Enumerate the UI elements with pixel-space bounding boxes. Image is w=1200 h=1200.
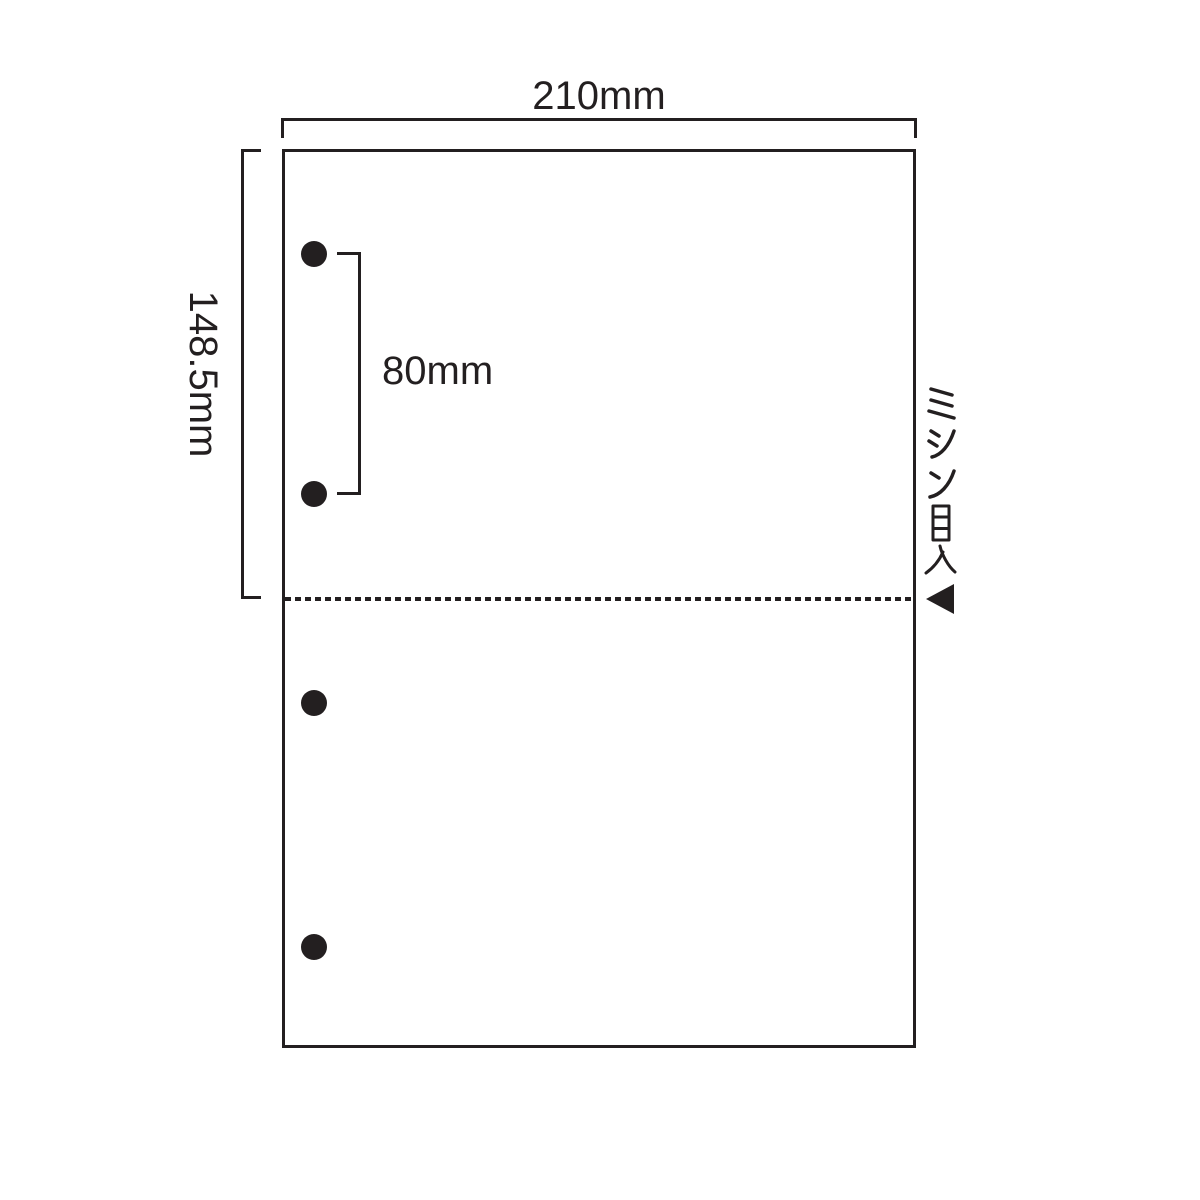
punch-hole — [301, 934, 327, 960]
hole-spacing-bracket — [337, 252, 361, 495]
paper-sheet — [282, 149, 916, 1048]
punch-hole — [301, 241, 327, 267]
perforation-dashed-line — [285, 597, 913, 601]
perforation-label-text: ミシン目入 — [921, 583, 922, 584]
punch-hole — [301, 690, 327, 716]
hole-spacing-label: 80mm — [382, 351, 493, 391]
perforation-text-glyphs — [921, 383, 961, 583]
diagram-canvas: 210mm 148.5mm 80mm — [0, 0, 1200, 1200]
punch-hole — [301, 481, 327, 507]
width-dimension-bracket — [281, 118, 917, 138]
perforation-label: ミシン目入 — [921, 383, 961, 583]
half-height-dimension-label: 148.5mm — [181, 264, 225, 484]
width-dimension-label: 210mm — [281, 76, 917, 116]
perforation-arrow-icon — [926, 584, 954, 614]
half-height-dimension-bracket — [241, 149, 261, 599]
